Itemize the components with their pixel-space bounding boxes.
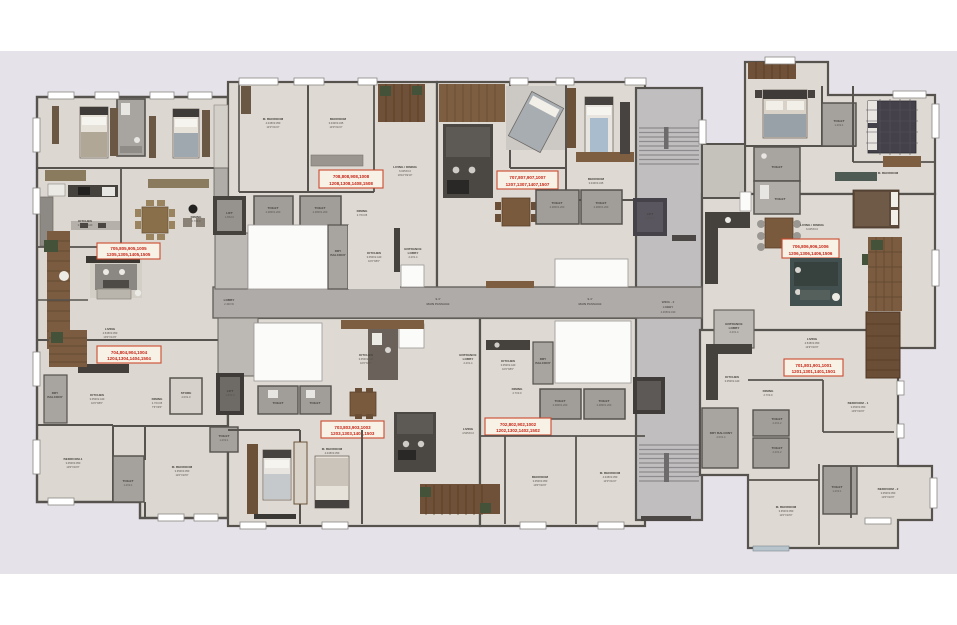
svg-text:TOILET: TOILET	[315, 206, 326, 210]
svg-text:LIVING / DINING: LIVING / DINING	[393, 165, 417, 169]
svg-text:M. BEDROOM: M. BEDROOM	[776, 505, 797, 509]
svg-text:3.050X2.440: 3.050X2.440	[725, 379, 740, 383]
svg-text:9.4': 9.4'	[588, 297, 593, 301]
svg-text:6.045X3.0: 6.045X3.0	[806, 227, 818, 231]
svg-text:2.280X1.200: 2.280X1.200	[594, 205, 609, 209]
svg-text:BEDROOM: BEDROOM	[532, 475, 549, 479]
svg-text:M. BEDROOM: M. BEDROOM	[600, 471, 621, 475]
svg-text:3.040X3.345: 3.040X3.345	[329, 121, 344, 125]
svg-text:KITCHEN: KITCHEN	[359, 353, 374, 357]
svg-text:2.400 W: 2.400 W	[224, 302, 234, 306]
svg-text:706,806,906,1006: 706,806,906,1006	[792, 244, 829, 249]
svg-text:10'0"X10'0": 10'0"X10'0"	[66, 465, 79, 469]
svg-text:1.2X2.1: 1.2X2.1	[220, 438, 229, 442]
svg-text:TOILET: TOILET	[555, 399, 566, 403]
svg-text:1207,1307,1407,1507: 1207,1307,1407,1507	[506, 182, 550, 187]
svg-text:4.045X3.350: 4.045X3.350	[325, 451, 340, 455]
svg-text:LOBBY: LOBBY	[408, 251, 420, 255]
svg-text:1202,1302,1402,1502: 1202,1302,1402,1502	[496, 428, 540, 433]
svg-text:TOILET: TOILET	[310, 401, 321, 405]
svg-text:LIVING: LIVING	[463, 427, 474, 431]
svg-text:4.545X3.0: 4.545X3.0	[462, 431, 474, 435]
svg-text:705,805,905,1005: 705,805,905,1005	[110, 246, 147, 251]
svg-text:M. BEDROOM: M. BEDROOM	[172, 465, 193, 469]
svg-text:LIFT: LIFT	[226, 211, 233, 215]
svg-text:2.2X1.2: 2.2X1.2	[773, 421, 782, 425]
svg-text:10'0"X8'0": 10'0"X8'0"	[360, 361, 372, 365]
svg-text:10'0"X10'0": 10'0"X10'0"	[851, 409, 864, 413]
svg-text:1.8X2.0: 1.8X2.0	[225, 215, 234, 219]
svg-text:2.2X1.4: 2.2X1.4	[409, 255, 418, 259]
svg-text:LIVING: LIVING	[807, 337, 818, 341]
svg-text:1.8X2.0: 1.8X2.0	[646, 216, 655, 220]
svg-text:10'0"X8'0": 10'0"X8'0"	[368, 259, 380, 263]
svg-text:3.050X2.440: 3.050X2.440	[367, 255, 382, 259]
svg-text:M. BEDROOM: M. BEDROOM	[878, 171, 899, 175]
svg-text:10'0"X14'9": 10'0"X14'9"	[103, 335, 116, 339]
svg-text:3.050X3.050: 3.050X3.050	[66, 461, 81, 465]
svg-text:10'0"X10'0": 10'0"X10'0"	[533, 483, 546, 487]
svg-text:TOILET: TOILET	[596, 201, 607, 205]
svg-text:10'0"X8'0": 10'0"X8'0"	[91, 401, 103, 405]
svg-text:704,804,904,1004: 704,804,904,1004	[111, 350, 148, 355]
svg-text:1201,1301,1401,1501: 1201,1301,1401,1501	[792, 369, 836, 374]
svg-text:11'0"X10'0": 11'0"X10'0"	[779, 513, 792, 517]
svg-text:BEDROOM - 2: BEDROOM - 2	[878, 487, 899, 491]
svg-text:6.045X3.0: 6.045X3.0	[399, 169, 411, 173]
svg-text:9.4': 9.4'	[436, 297, 441, 301]
svg-text:LIFT: LIFT	[227, 389, 234, 393]
svg-text:KITCHEN: KITCHEN	[501, 359, 516, 363]
svg-text:TOILET: TOILET	[599, 399, 610, 403]
svg-text:1205,1305,1405,1505: 1205,1305,1405,1505	[107, 252, 151, 257]
svg-text:LOBBY: LOBBY	[663, 305, 674, 309]
svg-text:701,801,901,1001: 701,801,901,1001	[795, 363, 832, 368]
svg-text:M. BEDROOM: M. BEDROOM	[322, 447, 343, 451]
svg-text:2.7X3.05: 2.7X3.05	[152, 401, 163, 405]
svg-text:LOBBY: LOBBY	[224, 298, 236, 302]
svg-text:BEDROOM-1: BEDROOM-1	[64, 457, 83, 461]
svg-text:4.045X3.350: 4.045X3.350	[603, 475, 618, 479]
svg-text:TOILET: TOILET	[834, 119, 845, 123]
svg-text:BALCONY: BALCONY	[535, 361, 551, 365]
svg-text:DRY BALCONY: DRY BALCONY	[710, 431, 733, 435]
svg-text:2.0X1.4: 2.0X1.4	[717, 435, 726, 439]
svg-text:TOILET: TOILET	[268, 206, 279, 210]
svg-text:TOILET: TOILET	[123, 479, 134, 483]
svg-text:BALCONY: BALCONY	[330, 253, 346, 257]
svg-text:1.8X2.0: 1.8X2.0	[226, 393, 235, 397]
svg-text:1203,1303,1403,1503: 1203,1303,1403,1503	[331, 431, 375, 436]
svg-text:DINING: DINING	[152, 397, 163, 401]
svg-text:LIVING / DINING: LIVING / DINING	[800, 223, 824, 227]
svg-text:10'0"X11'0": 10'0"X11'0"	[329, 125, 342, 129]
svg-text:KITCHEN: KITCHEN	[367, 251, 382, 255]
svg-text:11'0"X10'0": 11'0"X10'0"	[175, 473, 188, 477]
svg-text:3.050X2.440: 3.050X2.440	[90, 397, 105, 401]
svg-text:2.2X1.4: 2.2X1.4	[730, 330, 739, 334]
svg-text:2.7X3.0: 2.7X3.0	[764, 393, 773, 397]
svg-text:MAIN PASSAGE: MAIN PASSAGE	[579, 302, 602, 306]
svg-text:DINING: DINING	[512, 387, 523, 391]
svg-text:TOILET: TOILET	[772, 417, 783, 421]
svg-text:14'9"X10'0": 14'9"X10'0"	[805, 345, 818, 349]
svg-text:TOILET: TOILET	[772, 165, 783, 169]
svg-text:DINING: DINING	[191, 215, 202, 219]
svg-text:13'3"X11'0": 13'3"X11'0"	[603, 479, 616, 483]
svg-text:TOILET: TOILET	[219, 434, 230, 438]
svg-text:1.2X2.1: 1.2X2.1	[833, 489, 842, 493]
svg-text:10'0"X8'0": 10'0"X8'0"	[502, 367, 514, 371]
svg-text:707,807,907,1007: 707,807,907,1007	[509, 175, 546, 180]
svg-text:1204,1304,1404,1504: 1204,1304,1404,1504	[107, 356, 151, 361]
svg-text:2.7X3.05: 2.7X3.05	[357, 213, 368, 217]
svg-text:TOILET: TOILET	[552, 201, 563, 205]
svg-text:19'10"X9'10": 19'10"X9'10"	[398, 173, 413, 177]
svg-text:4.045X3.350: 4.045X3.350	[266, 121, 281, 125]
svg-text:M. BEDROOM: M. BEDROOM	[263, 117, 284, 121]
svg-text:2.7X3.0: 2.7X3.0	[192, 219, 201, 223]
svg-text:3.350X3.050: 3.350X3.050	[779, 509, 794, 513]
svg-text:BEDROOM: BEDROOM	[330, 117, 347, 121]
svg-text:TOILET: TOILET	[772, 446, 783, 450]
svg-text:4.265X2.430: 4.265X2.430	[661, 310, 676, 314]
svg-text:702,802,902,1002: 702,802,902,1002	[500, 422, 537, 427]
svg-text:WING - 2: WING - 2	[662, 300, 675, 304]
svg-text:TOILET: TOILET	[832, 485, 843, 489]
svg-text:DINING: DINING	[763, 389, 774, 393]
svg-text:3.350X3.050: 3.350X3.050	[175, 469, 190, 473]
svg-text:10'0"X10'0": 10'0"X10'0"	[881, 495, 894, 499]
svg-text:2.280X1.200: 2.280X1.200	[553, 403, 568, 407]
svg-text:BEDROOM - 1: BEDROOM - 1	[848, 401, 869, 405]
svg-text:3.040X3.345: 3.040X3.345	[589, 181, 604, 185]
svg-text:KITCHEN: KITCHEN	[78, 219, 93, 223]
svg-text:1206,1306,1406,1506: 1206,1306,1406,1506	[789, 251, 833, 256]
svg-text:2.2X1.4: 2.2X1.4	[464, 361, 473, 365]
svg-text:2.280X1.200: 2.280X1.200	[266, 210, 281, 214]
svg-text:3.050X3.050: 3.050X3.050	[881, 491, 896, 495]
svg-text:TOILET: TOILET	[273, 401, 284, 405]
svg-text:TOILET: TOILET	[775, 197, 786, 201]
svg-text:3.050X3.050: 3.050X3.050	[533, 479, 548, 483]
svg-text:1.2X2.1: 1.2X2.1	[124, 483, 133, 487]
svg-text:3.050X2.440: 3.050X2.440	[78, 223, 93, 227]
svg-text:1.2X2.1: 1.2X2.1	[835, 123, 844, 127]
svg-text:LIFT: LIFT	[647, 212, 654, 216]
svg-text:4.545X3.050: 4.545X3.050	[103, 331, 118, 335]
svg-text:2.280X1.200: 2.280X1.200	[313, 210, 328, 214]
svg-text:1208,1308,1408,1508: 1208,1308,1408,1508	[329, 181, 373, 186]
svg-text:LOBBY: LOBBY	[463, 357, 475, 361]
svg-text:2.7X3.0: 2.7X3.0	[513, 391, 522, 395]
svg-text:KITCHEN: KITCHEN	[725, 375, 740, 379]
svg-text:3.050X3.050: 3.050X3.050	[851, 405, 866, 409]
svg-text:2.280X1.200: 2.280X1.200	[550, 205, 565, 209]
svg-text:DINING: DINING	[357, 209, 368, 213]
svg-text:BEDROOM: BEDROOM	[588, 177, 605, 181]
svg-text:7'6"X9'0": 7'6"X9'0"	[152, 405, 162, 409]
svg-text:LOBBY: LOBBY	[729, 326, 741, 330]
svg-text:MAIN PASSAGE: MAIN PASSAGE	[427, 302, 450, 306]
svg-text:13'3"X11'0": 13'3"X11'0"	[266, 125, 279, 129]
svg-text:2.2X1.2: 2.2X1.2	[773, 450, 782, 454]
svg-text:KITCHEN: KITCHEN	[90, 393, 105, 397]
svg-text:703,803,903,1003: 703,803,903,1003	[334, 425, 371, 430]
svg-text:3.050X2.440: 3.050X2.440	[501, 363, 516, 367]
svg-text:708,808,908,1008: 708,808,908,1008	[333, 174, 370, 179]
svg-text:BALCONY: BALCONY	[47, 395, 63, 399]
svg-text:2.280X1.200: 2.280X1.200	[597, 403, 612, 407]
svg-text:3.050X2.440: 3.050X2.440	[359, 357, 374, 361]
svg-text:2.0X1.3: 2.0X1.3	[182, 395, 191, 399]
svg-text:4.545X3.050: 4.545X3.050	[805, 341, 820, 345]
svg-text:LIVING: LIVING	[105, 327, 116, 331]
svg-text:STORE: STORE	[181, 391, 192, 395]
